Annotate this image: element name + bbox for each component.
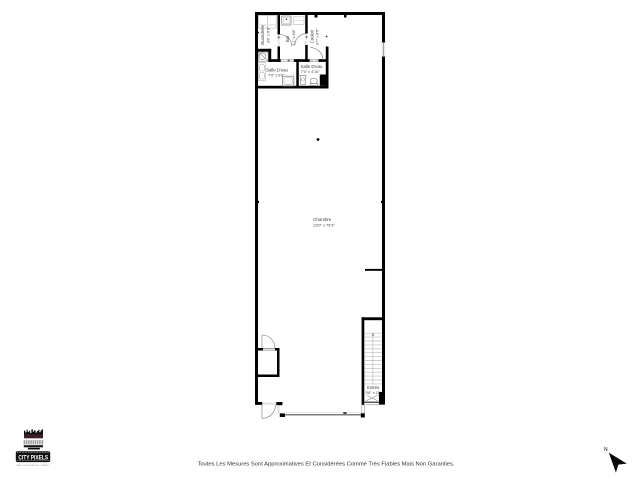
svg-text:Entrée: Entrée bbox=[367, 385, 380, 390]
svg-text:Buanderie: Buanderie bbox=[260, 25, 265, 45]
svg-text:5'6" x 17': 5'6" x 17' bbox=[365, 391, 380, 395]
svg-text:Couloir: Couloir bbox=[309, 29, 314, 43]
svg-text:CITY PIXELS: CITY PIXELS bbox=[18, 455, 48, 462]
svg-text:7'9" x 6'6": 7'9" x 6'6" bbox=[268, 74, 285, 78]
svg-text:REAL ESTATE MEDIA COMPANY: REAL ESTATE MEDIA COMPANY bbox=[16, 464, 50, 467]
svg-text:Chambre: Chambre bbox=[313, 217, 332, 222]
svg-text:Salle D'eau: Salle D'eau bbox=[301, 64, 323, 69]
svg-text:Bar: Bar bbox=[285, 35, 290, 42]
svg-text:N: N bbox=[604, 447, 608, 453]
svg-text:3'7" x 8'5": 3'7" x 8'5" bbox=[315, 28, 319, 45]
svg-text:4'1" x 6'8": 4'1" x 6'8" bbox=[292, 29, 296, 46]
svg-text:Toutes Les Mesures Sont Approx: Toutes Les Mesures Sont Approximatives E… bbox=[197, 462, 454, 468]
svg-text:Salle D'eau: Salle D'eau bbox=[266, 68, 288, 73]
svg-text:3'8" x 6'6": 3'8" x 6'6" bbox=[266, 26, 270, 43]
svg-text:7'4" x 4'10": 7'4" x 4'10" bbox=[301, 70, 320, 74]
svg-text:23'9" x 76'3": 23'9" x 76'3" bbox=[313, 223, 335, 228]
